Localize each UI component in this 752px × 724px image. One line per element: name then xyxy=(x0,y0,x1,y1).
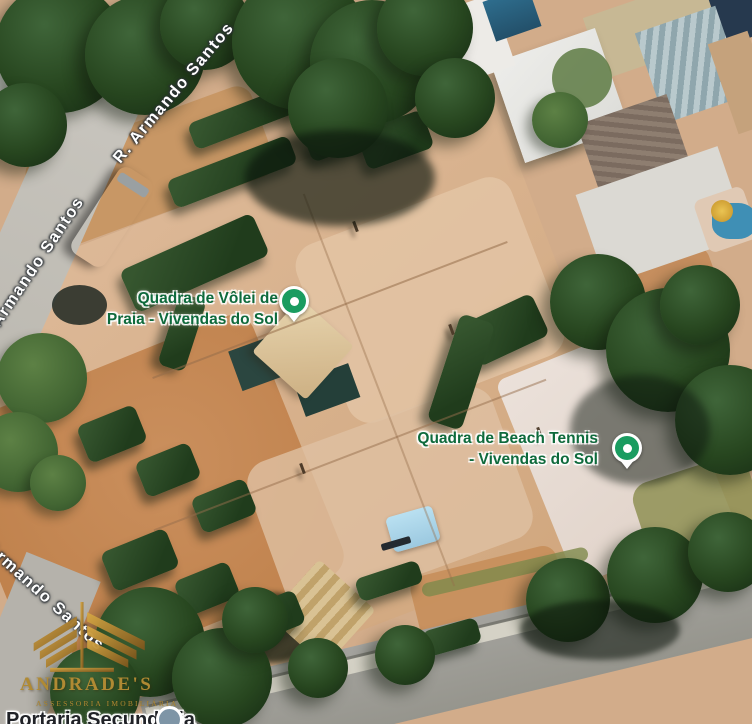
tree-canopy xyxy=(532,92,588,148)
tree-shadow xyxy=(245,130,435,226)
poi-marker-beach-tennis-court[interactable] xyxy=(612,433,642,470)
tree-canopy xyxy=(288,638,348,698)
satellite-map[interactable]: R. Armando Santos Armando Santos Armando… xyxy=(0,0,752,724)
marker-pin-dot xyxy=(623,444,632,453)
tree-canopy xyxy=(222,587,288,653)
andrades-tagline-text: ASSESSORIA IMOBILIÁRIA xyxy=(36,699,178,708)
marker-pin-tail xyxy=(619,459,635,477)
marker-pin-tail xyxy=(286,312,302,330)
poi-label-line2: - Vivendas do Sol xyxy=(417,449,598,470)
andrades-logo-icon xyxy=(12,602,152,674)
poi-label-beach-tennis-court[interactable]: Quadra de Beach Tennis - Vivendas do Sol xyxy=(417,428,598,470)
poi-label-line2: Praia - Vivendas do Sol xyxy=(107,309,278,330)
tree-canopy xyxy=(30,455,86,511)
marker-pin-circle xyxy=(279,286,309,316)
tree-canopy xyxy=(0,333,87,423)
poi-label-line1: Quadra de Vôlei de xyxy=(107,288,278,309)
marker-pin-circle xyxy=(612,433,642,463)
tree-shadow xyxy=(520,600,680,660)
marker-pin-dot xyxy=(290,297,299,306)
tree-canopy xyxy=(375,625,435,685)
tree-canopy xyxy=(415,58,495,138)
poi-label-volleyball-court[interactable]: Quadra de Vôlei de Praia - Vivendas do S… xyxy=(107,288,278,330)
car-dark xyxy=(52,285,107,325)
andrades-brand-text: ANDRADE'S xyxy=(20,674,153,696)
poi-marker-volleyball-court[interactable] xyxy=(279,286,309,323)
marker-pin-inner xyxy=(282,289,306,313)
umbrella xyxy=(711,200,733,222)
tree-canopy xyxy=(660,265,740,345)
marker-pin-inner xyxy=(615,436,639,460)
poi-label-line1: Quadra de Beach Tennis xyxy=(417,428,598,449)
